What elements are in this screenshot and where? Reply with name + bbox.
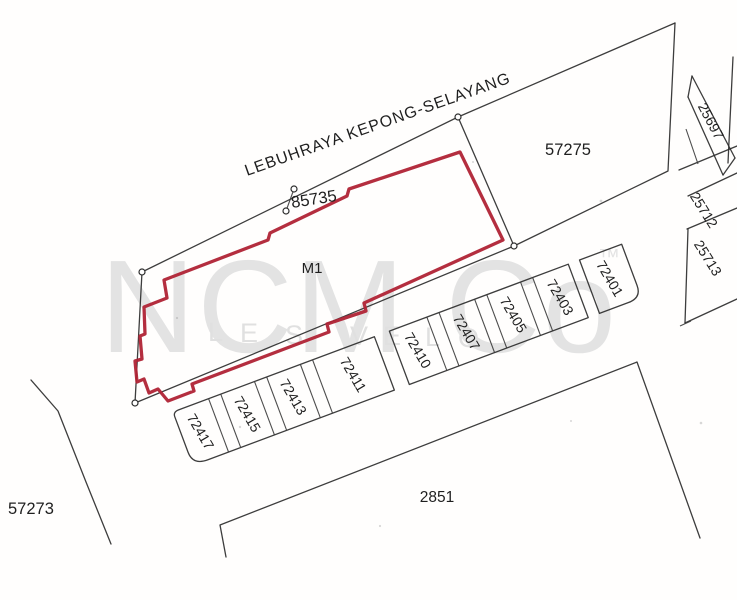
side-lot-number-label: 25697 xyxy=(695,100,728,142)
watermark-letter: L xyxy=(208,317,223,347)
survey-node xyxy=(511,243,517,249)
parcel-57275-boundary xyxy=(514,23,675,246)
side-lot-labels: 25697 25712 25713 xyxy=(687,100,727,279)
scan-speck xyxy=(379,525,381,527)
parcel-57273-label: 57273 xyxy=(8,500,54,518)
parcel-57275-label: 57275 xyxy=(545,141,591,159)
strip-25713-edge xyxy=(685,229,688,323)
survey-node xyxy=(291,186,297,192)
survey-node xyxy=(139,269,145,275)
lot-boundary-segment xyxy=(458,117,514,246)
scan-speck xyxy=(176,317,178,319)
strip-right-edge xyxy=(728,57,733,163)
parcel-57273-boundary xyxy=(31,380,111,544)
scan-speck xyxy=(600,200,603,203)
side-strips xyxy=(679,57,737,326)
side-lot-number-label: 25712 xyxy=(687,189,721,231)
strip-25713-edge xyxy=(685,299,737,323)
watermark-letter: V xyxy=(350,321,368,351)
lot-number-label: 72417 xyxy=(184,411,218,453)
strip-25697-cap xyxy=(723,158,735,175)
scan-speck xyxy=(513,321,515,323)
parcel-boundary-segment xyxy=(31,380,111,544)
side-lot-number-label: 25713 xyxy=(691,237,725,279)
strip-detail-line xyxy=(686,129,698,164)
scan-speck xyxy=(700,422,703,425)
scan-speck xyxy=(239,426,241,428)
survey-node xyxy=(455,114,461,120)
watermark-letter: E xyxy=(383,321,401,351)
parcel-boundary-segment xyxy=(514,23,675,246)
strip-25697-cap xyxy=(688,76,692,97)
watermark-letter: E xyxy=(240,318,258,348)
survey-plan-map: NCM Co ™ L E S V E L O xyxy=(0,0,737,600)
parcel-2851-label: 2851 xyxy=(420,489,454,506)
survey-node xyxy=(283,208,289,214)
survey-node xyxy=(132,400,138,406)
lot-number-label: 72413 xyxy=(277,376,311,418)
scan-speck xyxy=(472,161,474,163)
road-name-label: LEBUHRAYA KEPONG-SELAYANG xyxy=(243,70,513,180)
lot-number-label: 72415 xyxy=(231,393,265,435)
scan-speck xyxy=(570,420,572,422)
plat-canvas: NCM Co ™ L E S V E L O xyxy=(0,0,737,600)
highlight-unit-label: M1 xyxy=(302,260,323,277)
